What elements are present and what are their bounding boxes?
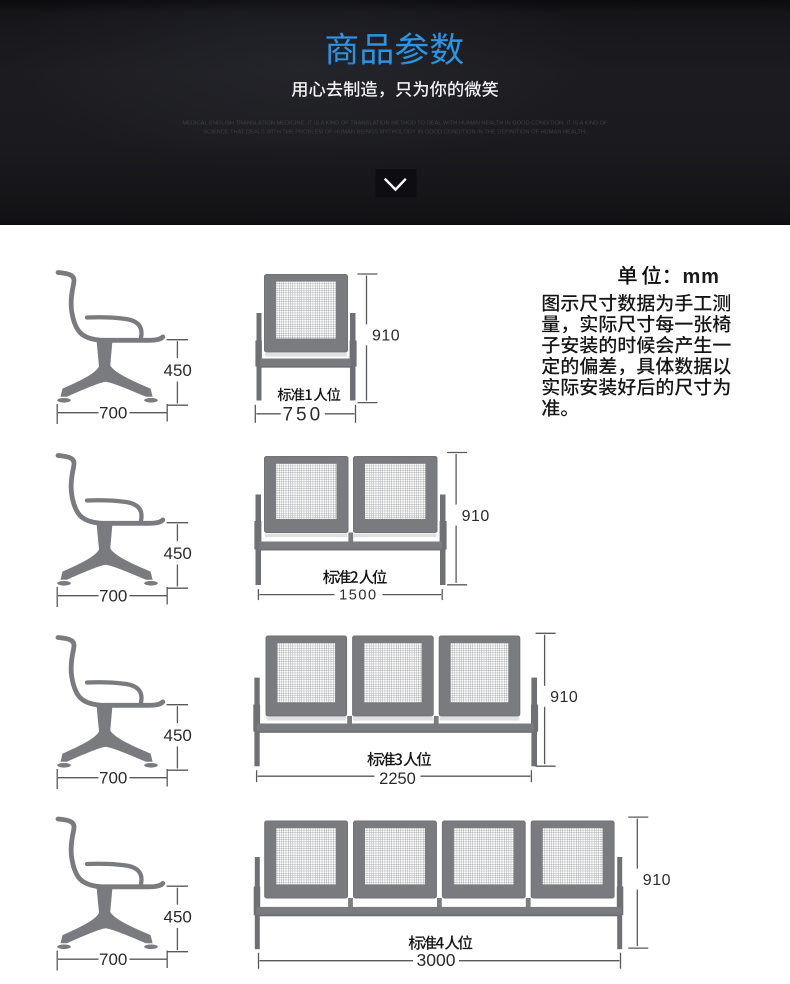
svg-text:910: 910 — [462, 508, 490, 525]
svg-text:910: 910 — [550, 689, 578, 706]
svg-text:2250: 2250 — [379, 770, 416, 788]
svg-text:910: 910 — [372, 328, 400, 345]
svg-text:1500: 1500 — [339, 587, 378, 603]
svg-text:MEDICAL ENGLISH TRANSLATION ME: MEDICAL ENGLISH TRANSLATION MEDICINE. IT… — [182, 121, 608, 127]
svg-text:3000: 3000 — [417, 950, 456, 970]
svg-text:910: 910 — [643, 872, 671, 889]
svg-text:750: 750 — [282, 405, 323, 426]
svg-text:SCIENCE THAT DEALS WITH THE PR: SCIENCE THAT DEALS WITH THE PROBLEM OF H… — [203, 130, 587, 136]
svg-text:mm: mm — [683, 266, 720, 288]
